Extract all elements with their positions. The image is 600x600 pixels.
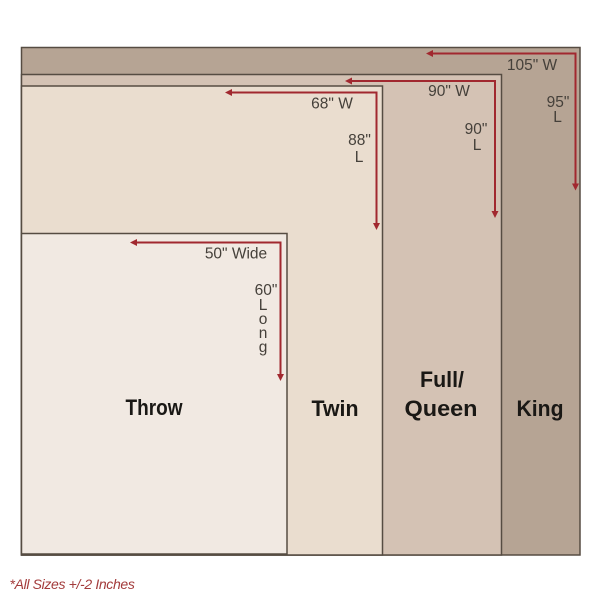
svg-text:68" W: 68" W — [311, 96, 353, 113]
svg-text:Twin: Twin — [312, 396, 359, 421]
svg-text:Throw: Throw — [126, 395, 184, 420]
svg-text:L: L — [553, 109, 562, 126]
svg-text:88": 88" — [348, 132, 371, 149]
svg-text:Full/: Full/ — [420, 367, 464, 392]
svg-text:50" Wide: 50" Wide — [205, 246, 267, 263]
svg-text:*All Sizes +/-2 Inches: *All Sizes +/-2 Inches — [10, 576, 135, 592]
svg-text:L: L — [473, 137, 482, 154]
svg-text:Queen: Queen — [405, 396, 478, 421]
svg-text:90": 90" — [465, 121, 488, 138]
svg-text:King: King — [517, 396, 564, 421]
svg-text:105" W: 105" W — [507, 57, 558, 74]
svg-text:g: g — [259, 339, 268, 356]
svg-text:90" W: 90" W — [428, 83, 470, 100]
svg-text:L: L — [355, 149, 364, 166]
